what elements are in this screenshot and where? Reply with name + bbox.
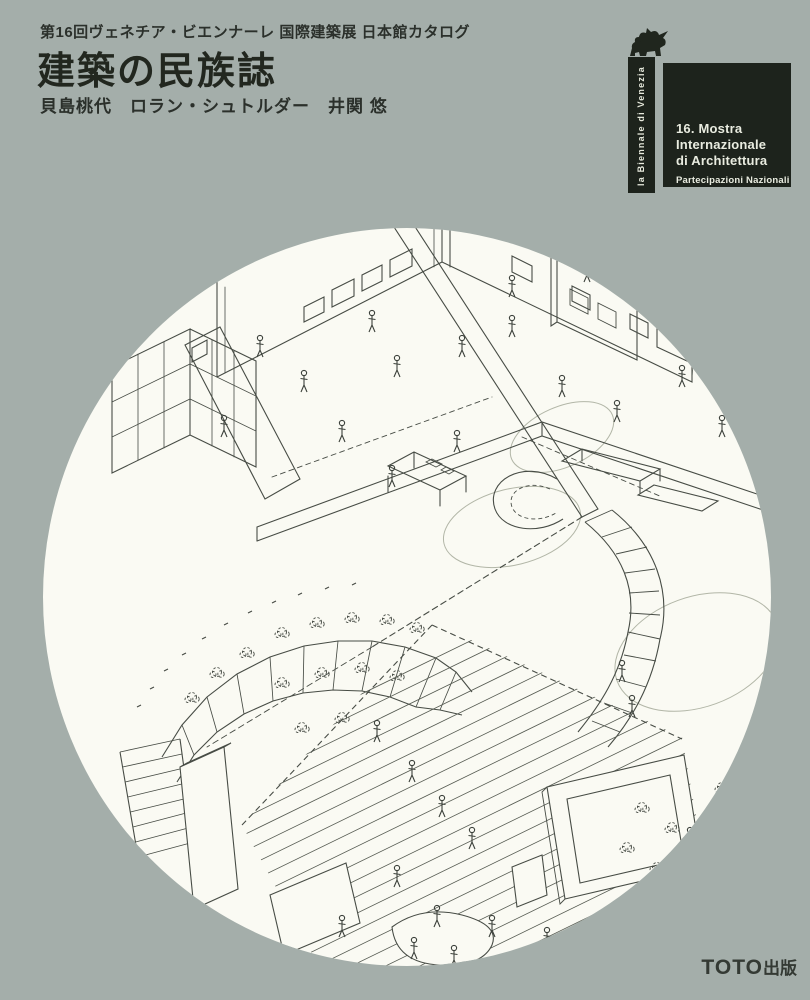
pavilion-sketch-illustration <box>42 227 772 967</box>
publisher-logo: TOTO出版 <box>701 954 797 980</box>
authors-line: 貝島桃代 ロラン・シュトルダー 井関 悠 <box>40 92 388 117</box>
biennale-strip-label: la Biennale di Venezia <box>628 63 655 189</box>
book-title: 建築の民族誌 <box>37 40 277 95</box>
biennale-square-badge: 16. Mostra Internazionale di Architettur… <box>663 63 791 187</box>
partecipazioni-label: Partecipazioni Nazionali <box>676 175 790 186</box>
publisher-suffix: 出版 <box>763 959 797 978</box>
mostra-title: 16. Mostra Internazionale di Architettur… <box>676 121 767 169</box>
winged-lion-icon <box>627 26 669 60</box>
cover-illustration <box>42 227 772 967</box>
toto-logo-text: TOTO <box>701 956 763 979</box>
book-cover: 第16回ヴェネチア・ビエンナーレ 国際建築展 日本館カタログ 建築の民族誌 貝島… <box>0 0 810 1000</box>
biennale-strip: la Biennale di Venezia <box>628 57 655 193</box>
series-label: 第16回ヴェネチア・ビエンナーレ 国際建築展 日本館カタログ <box>40 21 470 42</box>
